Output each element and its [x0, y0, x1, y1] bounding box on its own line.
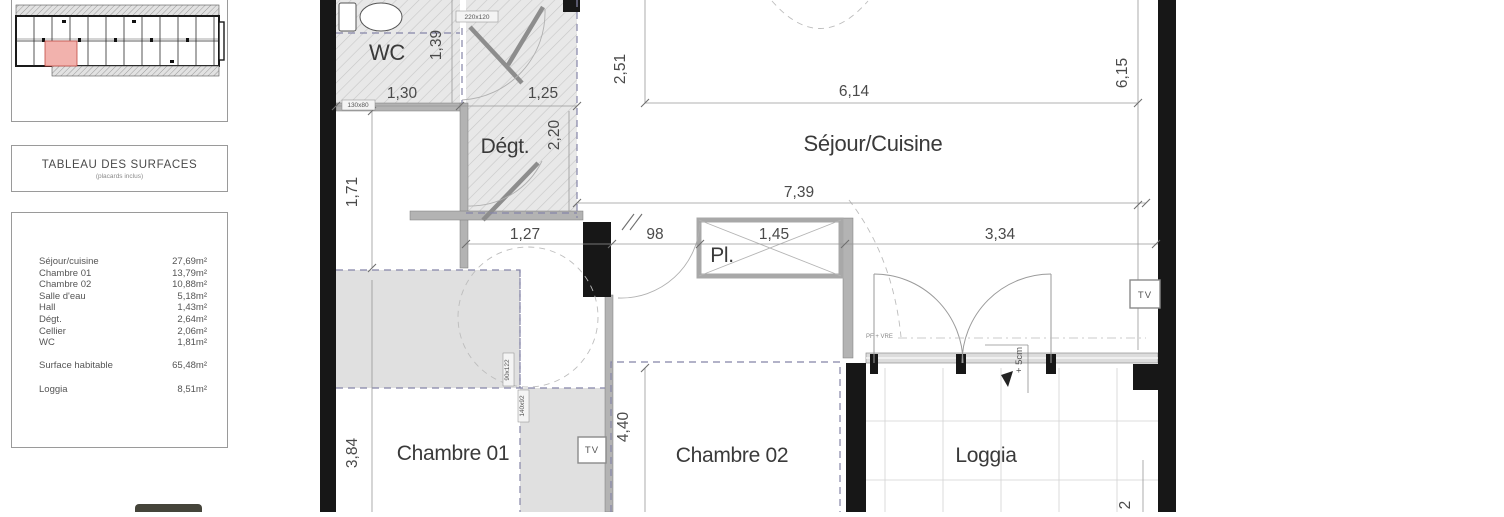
- dim-6-14: 6,14: [839, 83, 870, 100]
- total-area: 65,48m²: [172, 360, 207, 372]
- degagement-label: Dégt.: [481, 135, 530, 158]
- tag-140x92: 140x92: [519, 395, 526, 417]
- wc-label: WC: [369, 40, 405, 65]
- dim-4-40: 4,40: [615, 412, 632, 443]
- table-row: Dégt. 2,64m²: [12, 314, 227, 326]
- room-area: 2,06m²: [177, 326, 207, 338]
- room-label: Cellier: [39, 326, 66, 338]
- highlighted-unit: [45, 41, 77, 66]
- tv-outlet-chambre01: TV: [578, 437, 606, 463]
- building-key-plan: [12, 0, 227, 120]
- toilet-fixture: [339, 3, 402, 31]
- dim-1-25: 1,25: [528, 85, 558, 102]
- surfaces-table-box: Séjour/cuisine 27,69m² Chambre 01 13,79m…: [11, 212, 228, 448]
- table-row: Salle d'eau 5,18m²: [12, 291, 227, 303]
- loggia-label: Loggia: [955, 444, 1017, 467]
- sejour-label: Séjour/Cuisine: [804, 131, 943, 156]
- tv-label: TV: [1138, 290, 1152, 301]
- right-wall: [1158, 0, 1176, 512]
- room-area: 10,88m²: [172, 279, 207, 291]
- placard-zones: [336, 270, 606, 512]
- table-row: Séjour/cuisine 27,69m²: [12, 256, 227, 268]
- room-label: WC: [39, 337, 55, 349]
- room-area: 1,81m²: [177, 337, 207, 349]
- dim-3-34: 3,34: [985, 226, 1016, 243]
- dim-7-39: 7,39: [784, 184, 814, 201]
- window-wall: [866, 353, 1158, 363]
- surfaces-subtitle: (placards inclus): [12, 173, 227, 180]
- room-label: Dégt.: [39, 314, 62, 326]
- table-row: Cellier 2,06m²: [12, 326, 227, 338]
- level-step-note: + 5cm: [1014, 347, 1025, 373]
- surface-table: Séjour/cuisine 27,69m² Chambre 01 13,79m…: [12, 213, 227, 396]
- placard-label: Pl.: [710, 244, 734, 267]
- room-label: Chambre 01: [39, 268, 91, 280]
- total-label: Surface habitable: [39, 360, 113, 372]
- dim-2-20: 2,20: [546, 120, 563, 151]
- loggia-area: 8,51m²: [177, 384, 207, 396]
- room-label: Hall: [39, 302, 55, 314]
- room-label: Salle d'eau: [39, 291, 86, 303]
- window-type-note: PF + VRE: [866, 334, 893, 340]
- surfaces-title: TABLEAU DES SURFACES: [12, 159, 227, 171]
- table-row-total: Surface habitable 65,48m²: [12, 360, 227, 372]
- floor-plan: TV TV WC Dégt. Séjour/Cuisine Pl. Chambr…: [320, 0, 1504, 512]
- room-label: Séjour/cuisine: [39, 256, 99, 268]
- key-plan-box: [11, 0, 228, 122]
- room-area: 27,69m²: [172, 256, 207, 268]
- dim-6-15: 6,15: [1114, 58, 1131, 88]
- dim-98: 98: [646, 226, 663, 243]
- loggia-tiles: [866, 368, 1158, 512]
- loggia-label: Loggia: [39, 384, 68, 396]
- surfaces-title-box: TABLEAU DES SURFACES (placards inclus): [11, 145, 228, 192]
- floor-plan-area: TV TV WC Dégt. Séjour/Cuisine Pl. Chambr…: [320, 0, 1504, 512]
- dim-cut: 2: [1117, 501, 1134, 510]
- room-area: 1,43m²: [177, 302, 207, 314]
- table-row-loggia: Loggia 8,51m²: [12, 384, 227, 396]
- dim-1-30: 1,30: [387, 85, 418, 102]
- dim-2-51: 2,51: [612, 54, 629, 84]
- room-area: 5,18m²: [177, 291, 207, 303]
- tag-220x120: 220x120: [465, 14, 490, 21]
- dim-1-45: 1,45: [759, 226, 789, 243]
- room-label: Chambre 02: [39, 279, 91, 291]
- table-row: WC 1,81m²: [12, 337, 227, 349]
- left-wall: [320, 0, 336, 512]
- dim-1-39: 1,39: [428, 30, 445, 60]
- chambre02-label: Chambre 02: [676, 444, 789, 467]
- table-row: Chambre 01 13,79m²: [12, 268, 227, 280]
- dim-1-71: 1,71: [344, 177, 361, 207]
- table-row: Chambre 02 10,88m²: [12, 279, 227, 291]
- tv-outlet-sejour: TV: [1130, 280, 1160, 308]
- tag-130x80: 130x80: [347, 102, 369, 109]
- table-row: Hall 1,43m²: [12, 302, 227, 314]
- dim-3-84: 3,84: [344, 438, 361, 469]
- dim-1-27: 1,27: [510, 226, 540, 243]
- room-area: 13,79m²: [172, 268, 207, 280]
- tv-label: TV: [585, 445, 599, 456]
- chambre01-label: Chambre 01: [397, 442, 510, 465]
- cropped-photo-fragment: [135, 504, 202, 512]
- tag-90x122: 90x122: [504, 359, 511, 381]
- room-area: 2,64m²: [177, 314, 207, 326]
